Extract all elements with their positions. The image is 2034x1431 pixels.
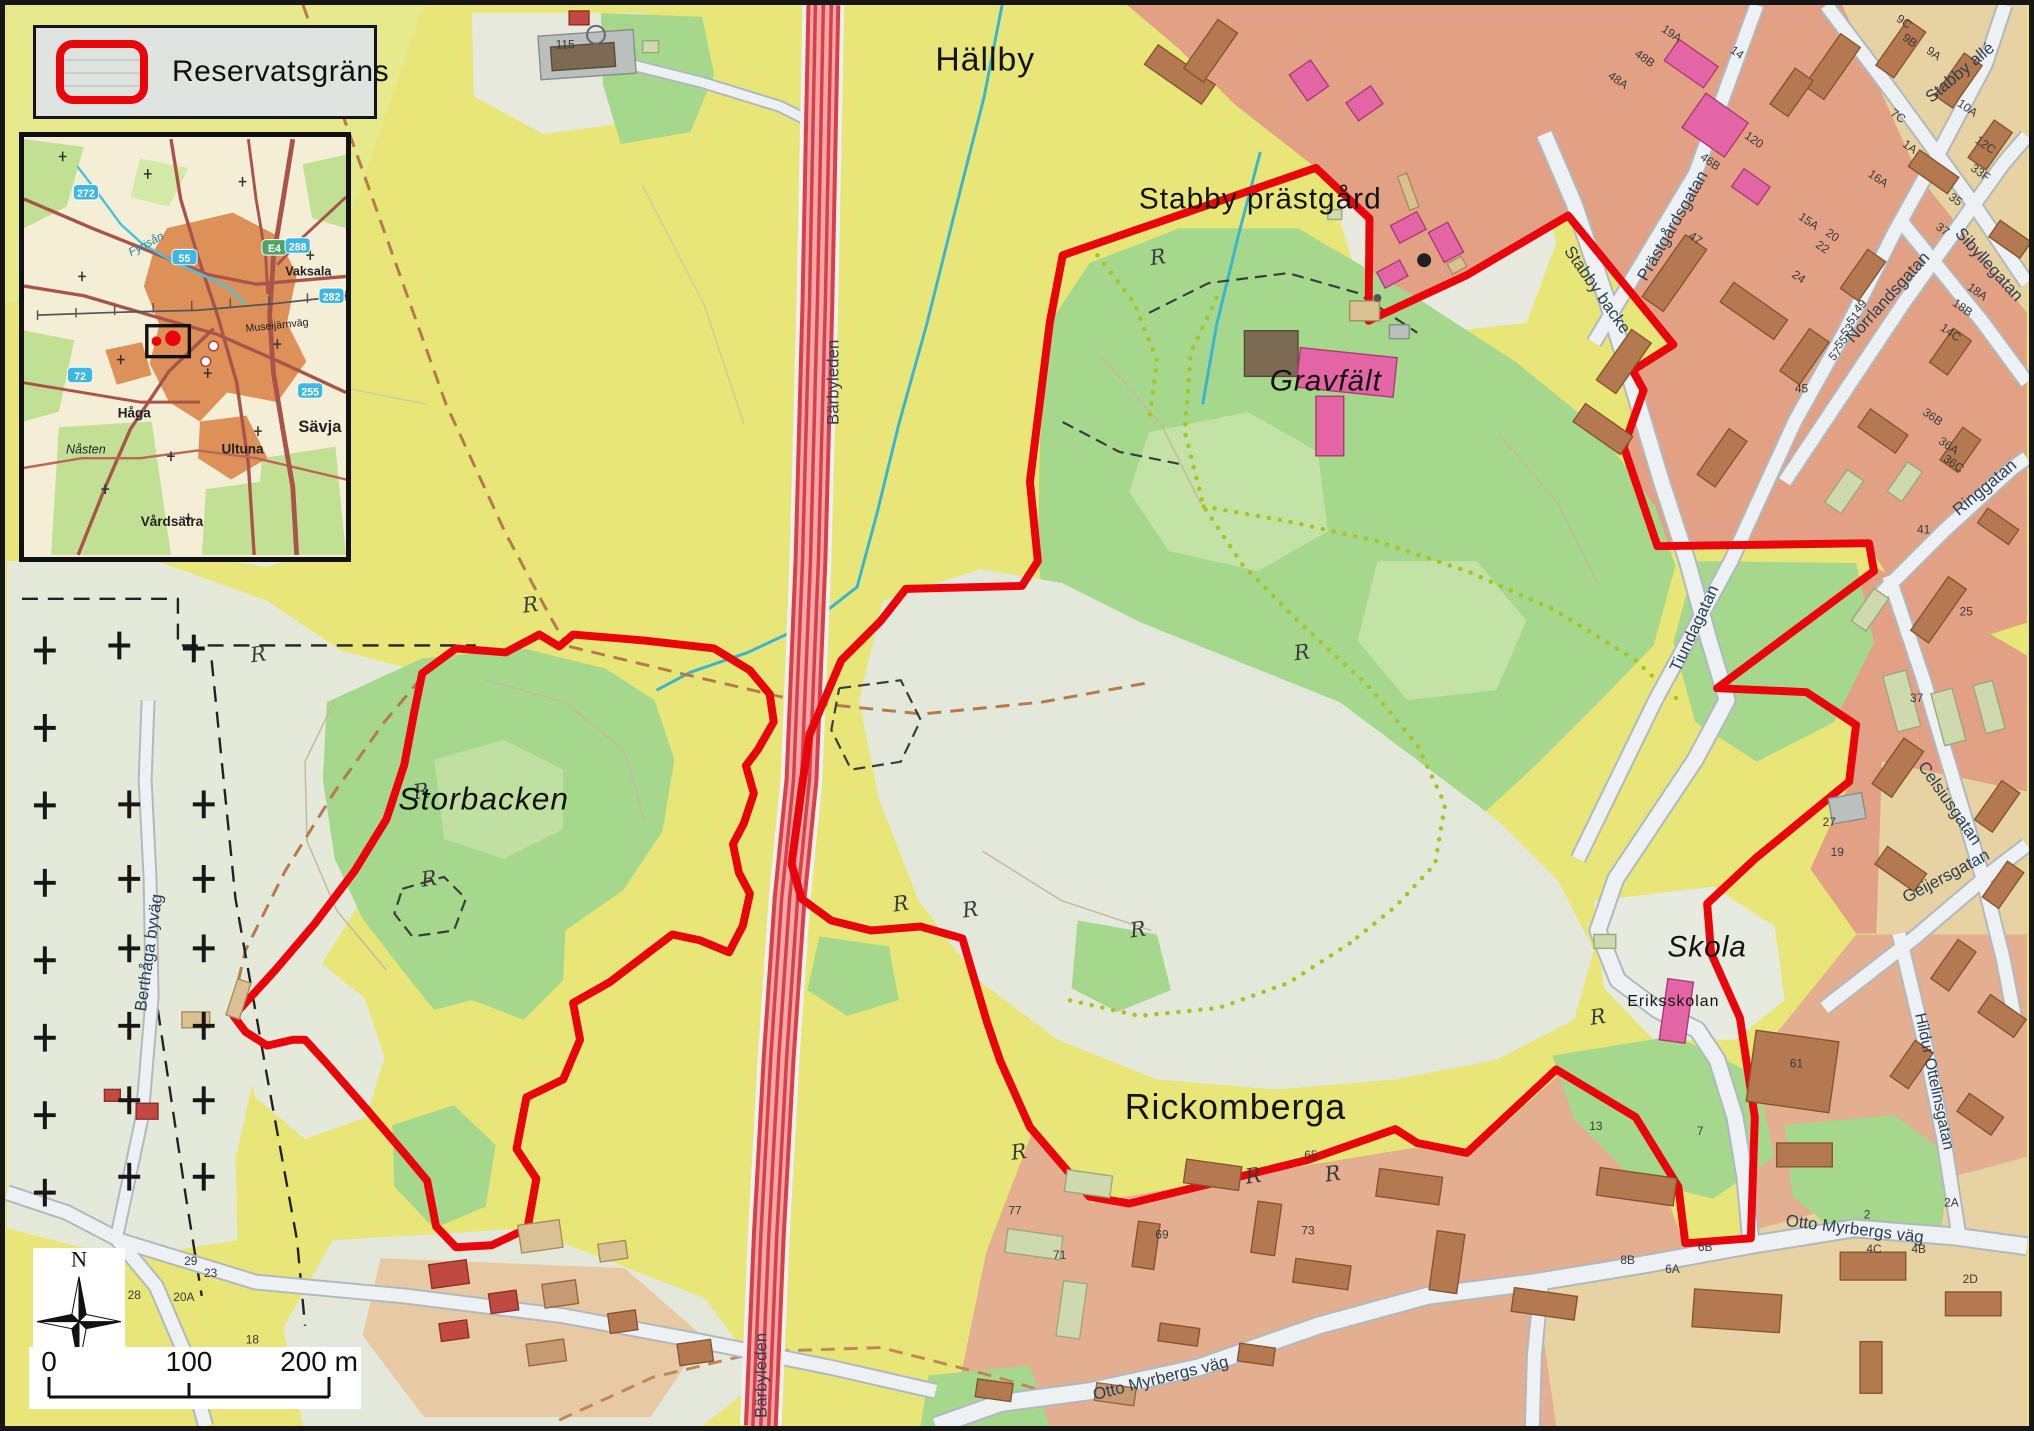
ancient-monument-r-marker: R [520, 592, 540, 618]
building [526, 1339, 566, 1366]
inset-site-icon [201, 357, 211, 367]
reserve-boundary-legend-symbol [56, 40, 148, 104]
scale-bar-line [49, 1377, 329, 1397]
house-number: 23 [204, 1266, 218, 1280]
building [488, 1290, 518, 1314]
house-number: 69 [1155, 1227, 1169, 1241]
house-number: 41 [1917, 522, 1931, 536]
house-number: 13 [1589, 1119, 1603, 1133]
house-number: 6A [1665, 1262, 1680, 1276]
legend-box: Reservatsgräns [33, 25, 377, 119]
building [608, 1310, 638, 1334]
ancient-monument-r-marker: R [1291, 639, 1311, 665]
reserve-location-blob [165, 331, 180, 346]
house-number: 27 [1823, 815, 1837, 829]
road-number: 55 [179, 253, 191, 265]
house-number: 29 [184, 1254, 198, 1268]
ancient-monument-r-marker: R [419, 866, 439, 892]
house-number: 18 [246, 1333, 260, 1347]
building [104, 1089, 120, 1101]
road-number: 272 [77, 188, 95, 200]
house-number: 20A [173, 1290, 194, 1304]
legend-label: Reservatsgräns [172, 55, 389, 89]
road-number: 255 [301, 386, 319, 398]
building [1350, 301, 1380, 321]
building [643, 41, 659, 53]
street-label: Bärbyleden [823, 340, 842, 425]
scale-100: 100 [166, 1347, 213, 1377]
inset-place-label: Vårdsätra [141, 514, 204, 529]
building [518, 1220, 563, 1253]
place-label: Storbacken [398, 780, 569, 816]
house-number: 37 [1910, 691, 1924, 705]
building [1389, 325, 1409, 339]
house-number: 73 [1301, 1223, 1315, 1237]
place-label: Hällby [935, 41, 1035, 79]
house-number: 115 [556, 38, 575, 52]
building [1692, 1289, 1782, 1333]
ancient-monument-r-marker: R [1243, 1163, 1263, 1189]
building [1945, 1292, 2001, 1316]
building [677, 1339, 713, 1365]
map-symbol [1417, 253, 1431, 267]
building [569, 11, 589, 25]
north-arrow: N [33, 1248, 125, 1360]
road-number: 282 [323, 292, 341, 304]
house-number: 2A [1944, 1196, 1959, 1210]
house-number: 2D [1963, 1272, 1979, 1286]
building [1594, 934, 1616, 948]
inset-place-label: Sävja [298, 418, 342, 436]
house-number: 2 [1864, 1207, 1871, 1221]
building [439, 1320, 469, 1342]
inset-place-label: Vaksala [285, 264, 332, 278]
ancient-monument-r-marker: R [1322, 1161, 1342, 1187]
house-number: 19 [1831, 845, 1845, 859]
place-label: Skola [1667, 930, 1746, 963]
building [1777, 1143, 1833, 1167]
scale-bar: 0 100 200 m [29, 1347, 361, 1409]
place-label: Eriksskolan [1627, 993, 1719, 1010]
house-number: 45 [1795, 381, 1809, 395]
inset-site-icon [209, 341, 219, 351]
place-label: Rickomberga [1125, 1087, 1346, 1127]
building [1316, 396, 1344, 456]
ancient-monument-r-marker: R [1128, 916, 1148, 942]
road-number: 72 [74, 371, 86, 383]
building [1746, 1030, 1839, 1112]
scale-0: 0 [41, 1347, 57, 1377]
house-number: 65 [1304, 1148, 1318, 1162]
building [429, 1260, 470, 1289]
north-label: N [71, 1248, 87, 1271]
ancient-monument-r-marker: R [1008, 1139, 1028, 1165]
place-label: Gravfält [1270, 364, 1383, 397]
scale-200: 200 m [280, 1347, 358, 1377]
overview-inset-map: 27255E428828272255VaksalaHågaSävjaNåsten… [19, 132, 351, 562]
ancient-monument-r-marker: R [890, 891, 910, 917]
ancient-monument-r-marker: R [960, 897, 980, 923]
road-number: 288 [289, 241, 307, 253]
building [542, 1280, 579, 1308]
inset-area [202, 479, 285, 554]
house-number: 7 [1697, 1124, 1704, 1138]
inset-place-label: Nåsten [66, 442, 106, 456]
house-number: 4C [1866, 1242, 1882, 1256]
road-number: E4 [268, 243, 281, 255]
ancient-monument-r-marker: R [248, 641, 268, 667]
ancient-monument-r-marker: R [1587, 1004, 1607, 1030]
inset-place-label: Ultuna [222, 441, 265, 456]
building [1840, 1252, 1906, 1280]
street-label: Bärbyleden [752, 1333, 771, 1418]
ancient-monument-r-marker: R [1147, 244, 1167, 270]
house-number: 8B [1620, 1253, 1635, 1267]
building [1860, 1342, 1882, 1394]
inset-place-label: Håga [118, 406, 152, 421]
place-label: Stabby prästgård [1139, 183, 1382, 216]
house-number: 25 [1960, 605, 1974, 619]
house-number: 61 [1790, 1057, 1804, 1071]
building [598, 1240, 628, 1262]
house-number: 28 [128, 1288, 142, 1302]
map-symbol [1373, 294, 1381, 302]
building [136, 1103, 158, 1119]
house-number: 71 [1053, 1248, 1067, 1262]
house-number: 4B [1911, 1242, 1926, 1256]
map-sheet: RRRRRRRRRRRRRHällbyStabby prästgårdGravf… [0, 0, 2034, 1431]
house-number: 6B [1698, 1240, 1713, 1254]
reserve-location-blob [152, 336, 162, 346]
house-number: 77 [1008, 1203, 1022, 1217]
